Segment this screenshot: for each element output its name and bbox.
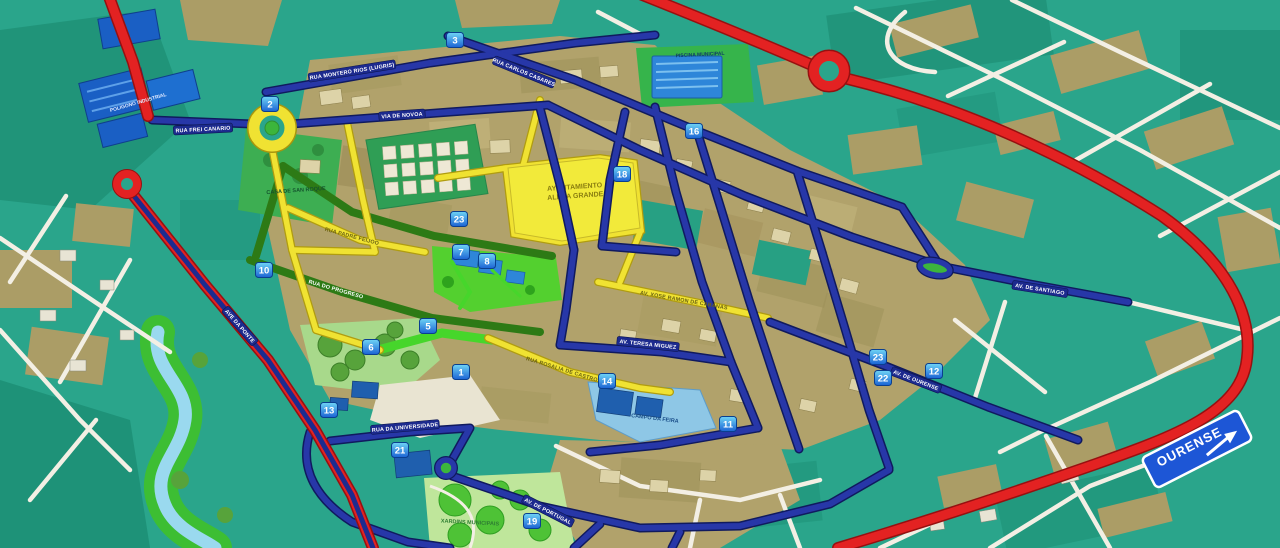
marker-number: 13: [324, 406, 335, 417]
marker-number: 14: [602, 377, 613, 388]
map-marker[interactable]: 12: [926, 364, 943, 379]
map-marker[interactable]: 14: [599, 374, 616, 389]
marker-number: 1: [458, 368, 464, 379]
map-marker[interactable]: 18: [614, 167, 631, 182]
marker-number: 3: [452, 36, 457, 47]
map-marker[interactable]: 7: [453, 245, 470, 260]
marker-number: 23: [873, 353, 884, 364]
map-marker[interactable]: 8: [479, 254, 496, 269]
small-red-roundabout: [117, 174, 137, 194]
map-canvas[interactable]: AYUNTAMIENTO ALDEA GRANDE RUA MONTERO RI…: [0, 0, 1280, 548]
marker-number: 7: [458, 248, 463, 259]
map-marker[interactable]: 1: [453, 365, 470, 380]
map-marker[interactable]: 5: [420, 319, 437, 334]
map-marker[interactable]: 23: [451, 212, 468, 227]
marker-number: 8: [484, 257, 489, 268]
map-marker[interactable]: 6: [363, 340, 380, 355]
map-marker[interactable]: 2: [262, 97, 279, 112]
map-marker[interactable]: 3: [447, 33, 464, 48]
marker-number: 22: [878, 374, 889, 385]
small-blue-roundabout: [438, 460, 454, 476]
marker-number: 21: [395, 446, 406, 457]
marker-number: 2: [267, 100, 272, 111]
map-marker[interactable]: 16: [686, 124, 703, 139]
red-roundabout: [814, 56, 844, 86]
map-marker[interactable]: 13: [321, 403, 338, 418]
map-page: AYUNTAMIENTO ALDEA GRANDE RUA MONTERO RI…: [0, 0, 1280, 548]
marker-number: 10: [259, 266, 270, 277]
marker-number: 18: [617, 170, 628, 181]
map-marker[interactable]: 11: [720, 417, 737, 432]
marker-number: 6: [368, 343, 373, 354]
map-marker[interactable]: 10: [256, 263, 273, 278]
marker-number: 11: [723, 420, 734, 431]
marker-number: 12: [929, 367, 940, 378]
pool-complex: [652, 56, 722, 98]
marker-number: 16: [689, 127, 700, 138]
marker-number: 5: [425, 322, 431, 333]
map-marker[interactable]: 22: [875, 371, 892, 386]
marker-number: 23: [454, 215, 465, 226]
map-marker[interactable]: 23: [870, 350, 887, 365]
marker-number: 19: [527, 517, 538, 528]
map-marker[interactable]: 21: [392, 443, 409, 458]
map-marker[interactable]: 19: [524, 514, 541, 529]
